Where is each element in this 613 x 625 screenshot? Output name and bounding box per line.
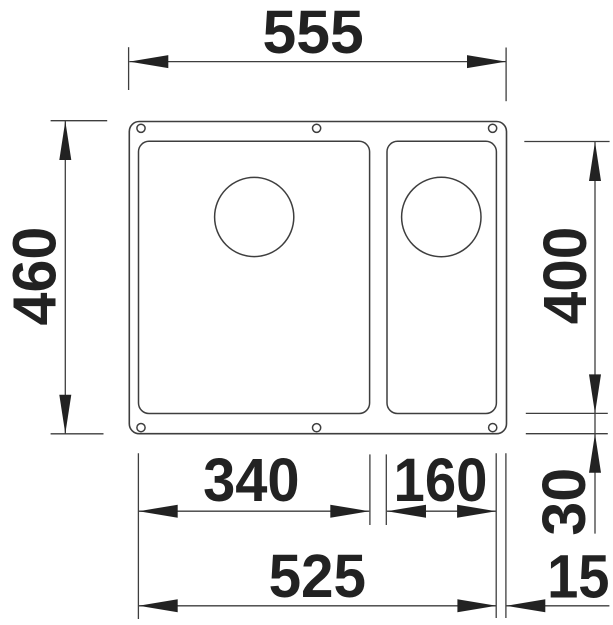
svg-text:400: 400: [531, 227, 599, 324]
svg-text:30: 30: [530, 468, 598, 536]
svg-text:160: 160: [394, 447, 488, 515]
svg-text:340: 340: [203, 445, 299, 514]
svg-text:15: 15: [547, 543, 609, 611]
svg-text:460: 460: [1, 227, 69, 326]
svg-text:555: 555: [262, 0, 363, 66]
svg-text:525: 525: [269, 542, 366, 610]
